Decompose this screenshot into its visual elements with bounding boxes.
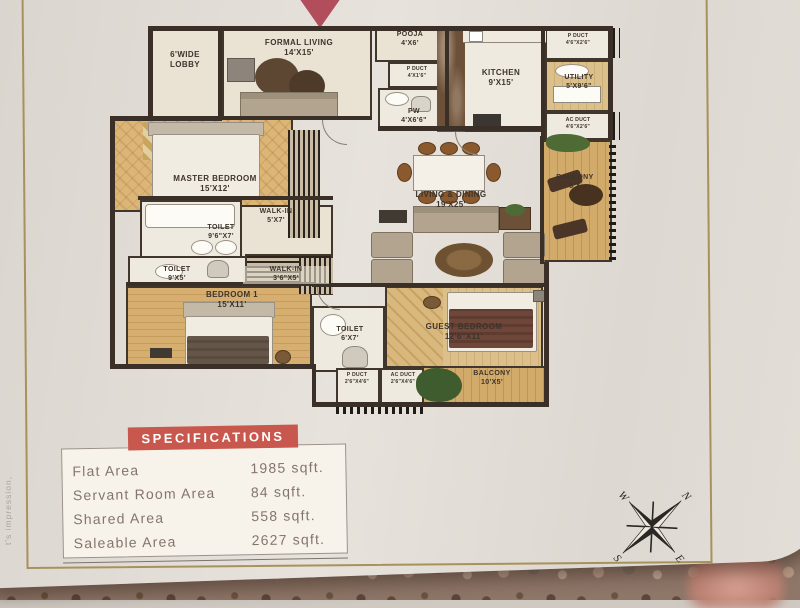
label-guest-bedroom: GUEST BEDROOM 12'6"X11': [402, 322, 526, 342]
dining-chair: [397, 163, 412, 182]
blanket: [187, 336, 269, 364]
spec-value: 1985 sqft.: [250, 459, 324, 476]
label-formal-living: FORMAL LIVING 14'X15': [226, 38, 372, 58]
compass-rose-icon: N S W E: [592, 476, 712, 578]
room-name: TOILET: [207, 224, 234, 231]
basin: [191, 240, 213, 255]
compass-e-label: E: [672, 552, 686, 566]
room-name: FORMAL LIVING: [265, 38, 333, 47]
label-kitchen: KITCHEN 9'X15': [455, 68, 547, 88]
room-dim: 15'X12': [135, 184, 295, 194]
room-dim: 9'6"X7': [169, 233, 273, 242]
room-dim: 3'6"X5': [243, 275, 329, 284]
shaft-hatch: [612, 28, 620, 58]
compass-point: [620, 523, 652, 553]
label-balcony-east: BALCONY 5'X: [540, 174, 610, 192]
room-name: P DUCT: [568, 33, 588, 39]
entry-arrow-icon: [299, 0, 341, 28]
label-utility: UTILITY 5'X9'6": [541, 74, 617, 92]
spec-label: Servant Room Area: [73, 485, 216, 503]
shaft-hatch: [612, 112, 620, 140]
spec-value: 84 sqft.: [251, 483, 307, 500]
room-dim: 4'6"X2'6": [543, 124, 613, 131]
armchair: [371, 232, 413, 258]
room-dim: 9'X5': [135, 275, 219, 284]
wall: [312, 364, 316, 406]
spec-label: Saleable Area: [74, 533, 177, 551]
specifications-table: Flat Area 1985 sqft. Servant Room Area 8…: [61, 444, 348, 559]
room-dim: 19'X25': [388, 200, 514, 210]
room-name: WALK-IN: [270, 266, 303, 273]
spec-label: Shared Area: [73, 510, 164, 528]
wall: [138, 196, 333, 200]
spec-value: 2627 sqft.: [252, 531, 326, 548]
room-dim: 12'6"X11': [402, 332, 526, 342]
spec-label: Flat Area: [72, 462, 139, 479]
room-name: P DUCT: [347, 372, 367, 378]
wall: [312, 402, 549, 407]
wall: [110, 116, 115, 369]
dining-chair: [418, 142, 436, 155]
dining-chair: [486, 163, 501, 182]
label-toilet-2: TOILET 9'X5': [135, 266, 219, 284]
label-toilet-master: TOILET 9'6"X7': [169, 224, 273, 242]
room-dim: 5'X9'6": [541, 83, 617, 92]
tv-unit: [150, 348, 172, 358]
room-lobby: [148, 28, 222, 120]
balcony-railing: [609, 142, 616, 260]
wall: [110, 116, 222, 121]
room-name: BALCONY: [473, 370, 510, 377]
room-name: TOILET: [163, 266, 190, 273]
dining-chair: [440, 142, 458, 155]
stool: [275, 350, 291, 364]
spec-value: 558 sqft.: [251, 507, 316, 524]
room-name: BEDROOM 1: [206, 290, 258, 299]
door-arc: [322, 120, 347, 145]
wall: [110, 364, 316, 369]
room-name: MASTER BEDROOM: [173, 174, 256, 183]
label-p-duct-3: P DUCT 2'6"X4'6": [334, 372, 380, 385]
armchair: [371, 259, 413, 285]
sofa: [240, 92, 338, 118]
room-dim: 5'X: [540, 183, 610, 192]
room-dim: 14'X15': [226, 48, 372, 58]
wall: [218, 26, 222, 120]
room-name: WALK-IN: [260, 208, 293, 215]
round-rug: [435, 243, 493, 277]
room-name: PW: [408, 108, 420, 115]
photo-of-floorplan-brochure: { "photo": { "side_text": "t's impressio…: [0, 0, 800, 600]
room-name: TOILET: [336, 326, 363, 333]
label-balcony-south: BALCONY 10'X5': [440, 370, 544, 388]
room-dim: 4'6"X2'6": [543, 40, 613, 47]
spec-row: Saleable Area 2627 sqft.: [74, 531, 339, 560]
room-dim: 4'X1'6": [386, 73, 448, 80]
room-name: P DUCT: [407, 66, 427, 72]
room-name: POOJA: [397, 31, 424, 38]
kitchen-sink: [469, 31, 483, 42]
toilet-wc: [342, 346, 368, 368]
plant: [546, 134, 590, 152]
dining-table: [413, 155, 485, 191]
label-ac-duct-1: AC DUCT 4'6"X2'6": [543, 117, 613, 130]
floor-plan: 6'WIDE LOBBY FORMAL LIVING 14'X15' POOJA…: [103, 26, 617, 418]
side-table: [227, 58, 255, 82]
label-p-duct-1: P DUCT 4'X1'6": [386, 66, 448, 79]
tv-console: [379, 210, 407, 223]
room-dim: 2'6"X4'6": [380, 379, 426, 386]
room-name: GUEST BEDROOM: [426, 322, 503, 331]
wall: [312, 283, 547, 287]
side-decor: [423, 296, 441, 309]
room-name: AC DUCT: [391, 372, 416, 378]
label-master-bedroom: MASTER BEDROOM 15'X12': [135, 174, 295, 194]
wall: [378, 126, 545, 131]
compass-w-label: W: [616, 489, 632, 504]
basin: [385, 92, 409, 106]
room-name: 6'WIDE LOBBY: [170, 50, 200, 69]
room-dim: 4'X6'6": [376, 117, 452, 126]
compass-point: [652, 501, 684, 531]
door-arc: [455, 132, 478, 155]
compass-s-label: S: [611, 552, 624, 564]
compass-point: [649, 527, 675, 555]
label-pooja: POOJA 4'X6': [373, 31, 447, 49]
compass-point: [629, 499, 655, 527]
label-ac-duct-2: AC DUCT 2'6"X4'6": [380, 372, 426, 385]
sofa: [413, 206, 499, 233]
room-name: AC DUCT: [566, 117, 591, 123]
wall: [218, 116, 372, 120]
label-pw: PW 4'X6'6": [376, 108, 452, 126]
shaft-hatch: [336, 406, 426, 414]
basin: [215, 240, 237, 255]
wall: [540, 136, 544, 264]
side-caption: t's impression,: [3, 415, 17, 545]
room-dim: 4'X6': [373, 40, 447, 49]
label-p-duct-2: P DUCT 4'6"X2'6": [543, 33, 613, 46]
armchair: [503, 232, 545, 258]
wall: [148, 26, 153, 118]
label-lobby: 6'WIDE LOBBY: [158, 50, 212, 70]
room-name: LIVING & DINING: [416, 190, 487, 199]
armchair: [503, 259, 545, 285]
specifications-title: SPECIFICATIONS: [128, 425, 298, 451]
label-walk-in-2: WALK-IN 3'6"X5': [243, 266, 329, 284]
room-dim: 6'X7': [307, 335, 393, 344]
room-dim: 15'X11': [169, 300, 295, 310]
room-dim: 2'6"X4'6": [334, 379, 380, 386]
label-bedroom-1: BEDROOM 1 15'X11': [169, 290, 295, 310]
label-toilet-3: TOILET 6'X7': [307, 326, 393, 344]
label-living-dining: LIVING & DINING 19'X25': [388, 190, 514, 210]
room-name: BALCONY: [556, 174, 593, 181]
label-walk-in-1: WALK-IN 5'X7': [235, 208, 317, 226]
room-dim: 10'X5': [440, 379, 544, 388]
room-name: KITCHEN: [482, 68, 520, 77]
room-dim: 9'X15': [455, 78, 547, 88]
room-name: UTILITY: [564, 74, 593, 81]
